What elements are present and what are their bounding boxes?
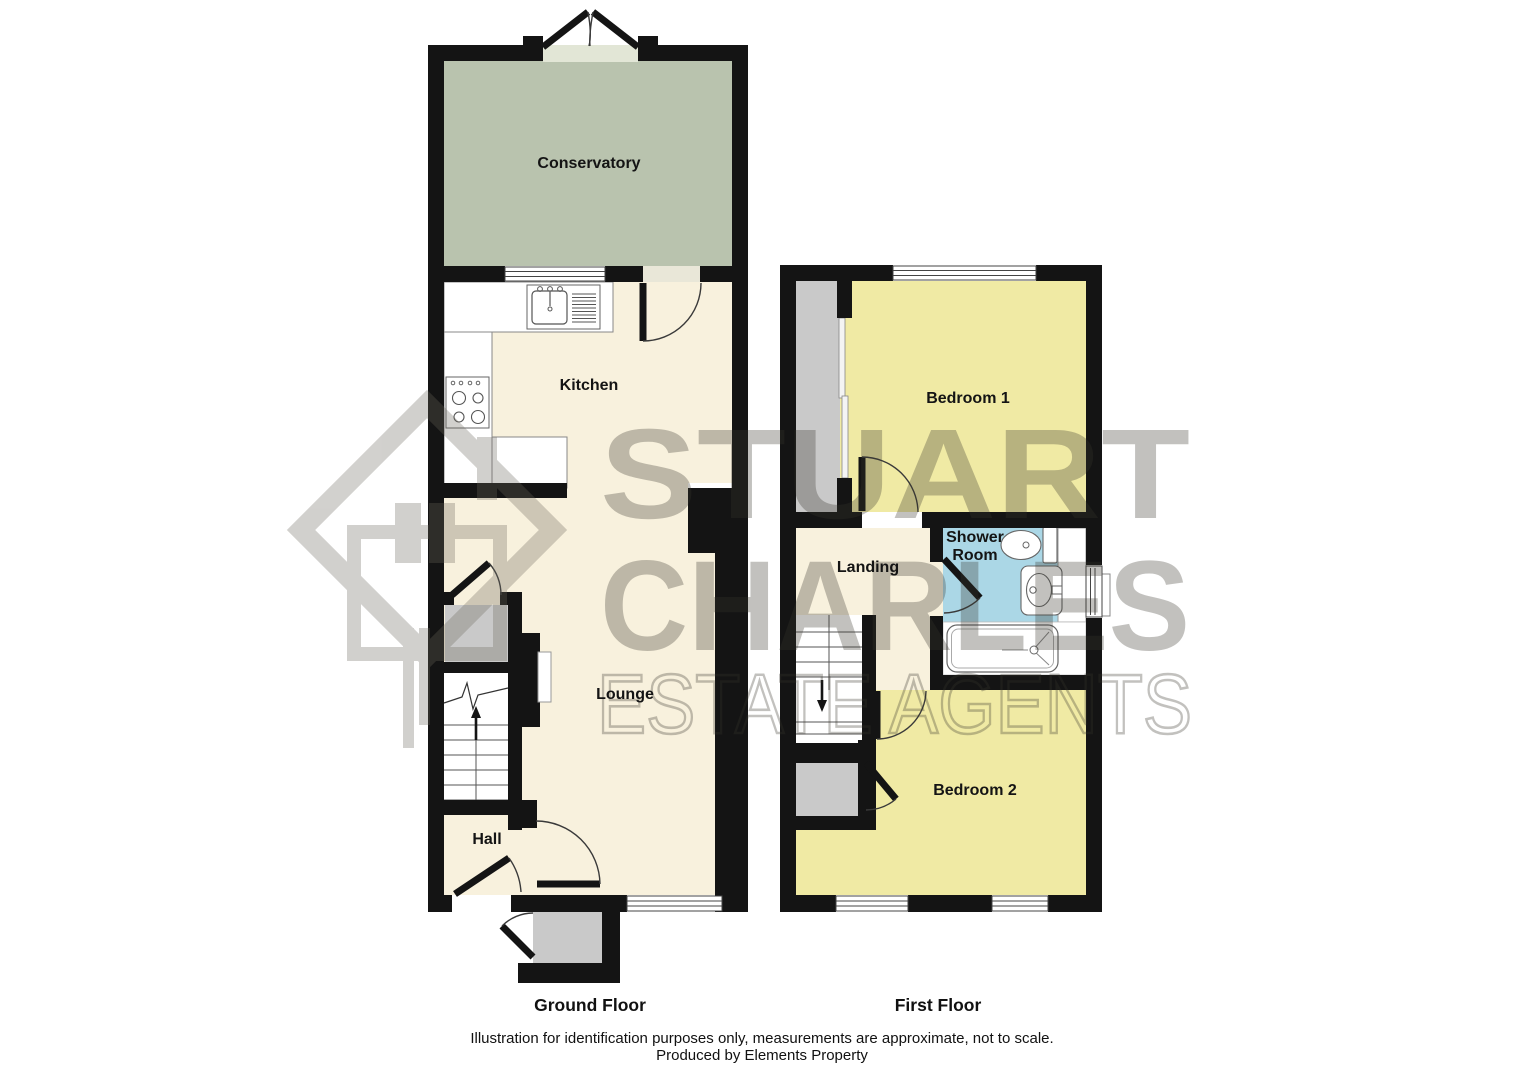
bedroom1-window [893, 266, 1036, 280]
footer: Ground Floor First Floor Illustration fo… [470, 995, 1053, 1064]
kitchen-conservatory-threshold [643, 266, 700, 282]
watermark-brand-line1: STUART [600, 403, 1190, 546]
bedroom2-window-right [992, 896, 1048, 911]
bedroom2-window-left [836, 896, 908, 911]
porch-floor [533, 912, 602, 963]
label-shower-room-line1: Shower [946, 529, 1004, 546]
conservatory-french-doors [543, 12, 638, 47]
watermark-brand-line3: ESTATE AGENTS [597, 657, 1192, 751]
fireplace-icon [538, 652, 551, 702]
staircase-ground [444, 672, 508, 810]
label-hall: Hall [472, 831, 501, 848]
label-landing: Landing [837, 559, 899, 576]
label-shower-room-line2: Room [952, 547, 997, 564]
producer-text: Produced by Elements Property [656, 1047, 868, 1064]
ground-floor-title: Ground Floor [534, 995, 646, 1015]
lounge-window [627, 896, 722, 911]
first-floor-title: First Floor [895, 995, 982, 1015]
kitchen-window [505, 267, 605, 281]
label-bedroom2: Bedroom 2 [933, 782, 1017, 799]
label-kitchen: Kitchen [560, 377, 619, 394]
landing-cupboard [796, 763, 858, 816]
disclaimer-text: Illustration for identification purposes… [470, 1030, 1053, 1047]
label-lounge: Lounge [596, 686, 654, 703]
floorplan-canvas: STUART CHARLES ESTATE AGENTS Conservator… [0, 0, 1528, 1080]
wardrobe-sliding-door [839, 318, 845, 398]
conservatory-door-threshold [543, 45, 638, 62]
label-bedroom1: Bedroom 1 [926, 390, 1010, 407]
label-conservatory: Conservatory [537, 155, 640, 172]
porch-door [502, 913, 533, 957]
kitchen-sink-icon [527, 285, 600, 329]
